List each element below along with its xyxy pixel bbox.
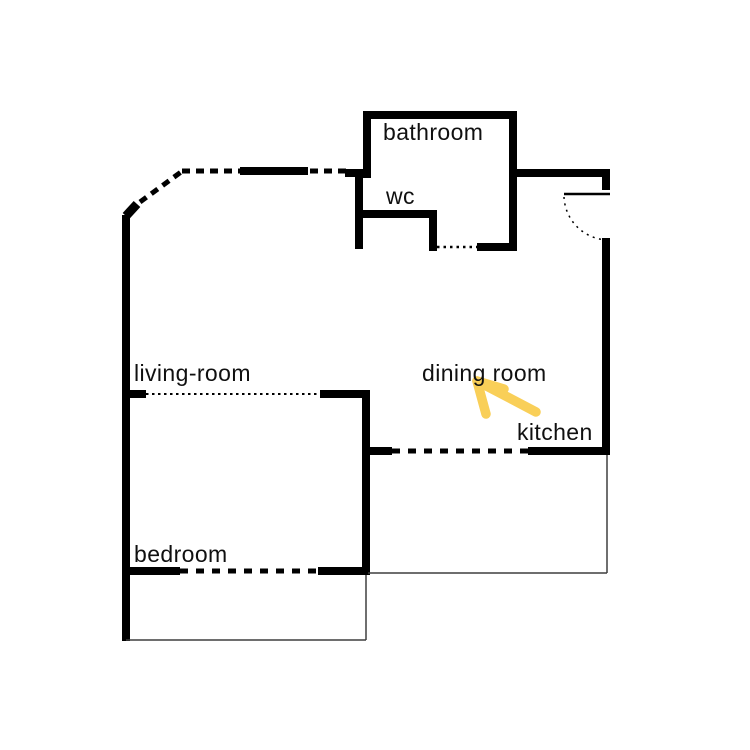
right-wall: [602, 238, 610, 455]
divider-wall: [362, 390, 370, 575]
room-label-wc: wc: [386, 184, 415, 209]
room-label-bedroom: bedroom: [134, 542, 228, 567]
room-label-bathroom: bathroom: [383, 120, 483, 145]
bedroom-wall-right: [318, 567, 370, 575]
window-segment-top: [240, 167, 308, 175]
wc-right-wall: [429, 210, 437, 251]
left-wall-chamfer: [126, 204, 137, 216]
wc-bottom-wall: [357, 210, 437, 218]
floor-plan-canvas: bathroom wc living-room dining room kitc…: [0, 0, 750, 750]
bathroom-top-wall: [363, 111, 517, 119]
floor-plan-svg: [0, 0, 750, 750]
left-wall: [122, 215, 130, 641]
bathroom-right-wall: [509, 111, 517, 251]
room-label-living-room: living-room: [134, 361, 251, 386]
bathroom-left-wall: [363, 111, 371, 178]
diagonal-dashed: [140, 172, 181, 202]
entry-door-jamb: [602, 177, 610, 190]
wc-left-wall: [355, 169, 363, 249]
kitchen-wall-right: [528, 447, 610, 455]
entry-top-wall: [517, 169, 610, 177]
bedroom-wall-left: [122, 567, 180, 575]
room-label-dining-room: dining room: [422, 361, 547, 386]
bathroom-bottom-wall: [477, 243, 517, 251]
room-label-kitchen: kitchen: [517, 420, 593, 445]
living-room-wall-right: [320, 390, 370, 398]
entry-door-arc: [564, 197, 609, 240]
kitchen-wall-left-stub: [370, 447, 392, 455]
